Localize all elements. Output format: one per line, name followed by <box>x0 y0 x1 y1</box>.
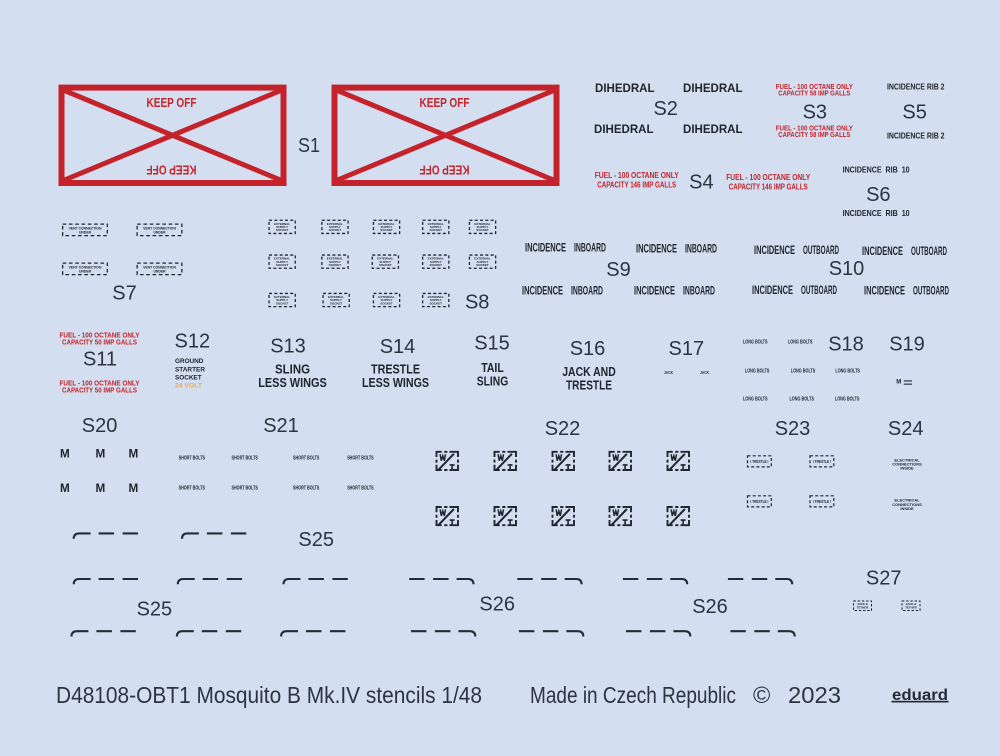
svg-text:INCIDENCE: INCIDENCE <box>636 241 677 255</box>
svg-text:S10: S10 <box>829 258 865 280</box>
svg-text:INBOARD: INBOARD <box>685 241 717 255</box>
svg-text:24 VOLT: 24 VOLT <box>175 382 202 389</box>
svg-text:S11: S11 <box>83 349 117 371</box>
svg-text:JACK: JACK <box>700 370 709 375</box>
svg-text:2023: 2023 <box>788 682 841 708</box>
svg-text:S9: S9 <box>606 259 630 281</box>
svg-text:M: M <box>129 482 139 495</box>
svg-text:SLING: SLING <box>477 373 509 388</box>
svg-text:OUTBOARD: OUTBOARD <box>913 284 949 298</box>
svg-text:CAPACITY 58 IMP GALLS: CAPACITY 58 IMP GALLS <box>778 130 850 139</box>
svg-text:INCIDENCE RIB 10: INCIDENCE RIB 10 <box>843 208 910 218</box>
svg-text:INCIDENCE: INCIDENCE <box>525 240 566 254</box>
svg-text:S3: S3 <box>803 101 827 123</box>
svg-text:JACK: JACK <box>664 370 673 375</box>
svg-text:FUEL - 100 OCTANE ONLY: FUEL - 100 OCTANE ONLY <box>726 173 811 182</box>
svg-text:CAPACITY 50 IMP GALLS: CAPACITY 50 IMP GALLS <box>62 385 137 394</box>
svg-text:S22: S22 <box>545 418 581 440</box>
svg-text:INBOARD: INBOARD <box>574 240 606 254</box>
svg-text:S12: S12 <box>175 331 211 353</box>
svg-text:S25: S25 <box>137 599 173 621</box>
svg-text:S19: S19 <box>889 334 925 356</box>
svg-text:S21: S21 <box>263 415 299 437</box>
svg-text:S13: S13 <box>270 336 306 358</box>
svg-text:INCIDENCE: INCIDENCE <box>634 284 675 298</box>
svg-text:D48108-OBT1 Mosquito B Mk.IV s: D48108-OBT1 Mosquito B Mk.IV stencils 1/… <box>56 682 482 708</box>
svg-text:S8: S8 <box>465 291 489 313</box>
svg-text:DIHEDRAL: DIHEDRAL <box>595 81 655 95</box>
svg-text:INBOARD: INBOARD <box>571 284 603 298</box>
svg-text:M: M <box>96 482 106 495</box>
svg-text:LESS WINGS: LESS WINGS <box>362 375 429 390</box>
svg-text:S23: S23 <box>775 418 811 440</box>
svg-text:M: M <box>60 448 70 461</box>
svg-text:S27: S27 <box>866 568 902 590</box>
svg-text:CAPACITY 146 IMP GALLS: CAPACITY 146 IMP GALLS <box>597 180 677 189</box>
svg-text:TRESTLE: TRESTLE <box>566 378 612 393</box>
svg-text:S24: S24 <box>888 418 924 440</box>
svg-text:S18: S18 <box>828 334 864 356</box>
svg-text:FUEL - 100 OCTANE ONLY: FUEL - 100 OCTANE ONLY <box>595 171 680 180</box>
svg-text:S26: S26 <box>479 594 515 616</box>
svg-text:S17: S17 <box>669 338 705 360</box>
svg-text:M: M <box>60 482 70 495</box>
svg-text:S26: S26 <box>692 596 728 618</box>
svg-text:CAPACITY 146 IMP GALLS: CAPACITY 146 IMP GALLS <box>729 182 809 191</box>
svg-text:DIHEDRAL: DIHEDRAL <box>683 81 743 95</box>
svg-text:S7: S7 <box>112 283 136 305</box>
svg-text:S16: S16 <box>570 338 606 360</box>
svg-text:INCIDENCE: INCIDENCE <box>522 284 563 298</box>
svg-text:INCIDENCE: INCIDENCE <box>864 284 905 298</box>
svg-text:M: M <box>129 448 139 461</box>
svg-text:DIHEDRAL: DIHEDRAL <box>594 122 654 136</box>
svg-text:INCIDENCE: INCIDENCE <box>754 243 795 257</box>
svg-text:OUTBOARD: OUTBOARD <box>911 244 947 258</box>
svg-text:INCIDENCE RIB 2: INCIDENCE RIB 2 <box>887 130 945 140</box>
svg-text:S4: S4 <box>689 172 713 194</box>
svg-text:CAPACITY 50 IMP GALLS: CAPACITY 50 IMP GALLS <box>62 337 137 346</box>
svg-text:S5: S5 <box>902 101 926 123</box>
svg-text:SOCKET: SOCKET <box>175 374 202 381</box>
svg-text:INCIDENCE RIB 10: INCIDENCE RIB 10 <box>843 165 910 175</box>
svg-text:S6: S6 <box>866 184 890 206</box>
svg-text:STARTER: STARTER <box>175 366 205 373</box>
svg-text:INCIDENCE: INCIDENCE <box>862 244 903 258</box>
svg-text:LESS WINGS: LESS WINGS <box>258 375 327 390</box>
svg-text:INCIDENCE: INCIDENCE <box>752 283 793 297</box>
svg-text:OUTBOARD: OUTBOARD <box>801 283 837 297</box>
svg-text:S2: S2 <box>653 98 677 120</box>
svg-text:S1: S1 <box>298 135 320 157</box>
svg-text:INCIDENCE RIB 2: INCIDENCE RIB 2 <box>887 82 945 92</box>
svg-text:INBOARD: INBOARD <box>683 284 715 298</box>
svg-text:DIHEDRAL: DIHEDRAL <box>683 122 743 136</box>
svg-text:OUTBOARD: OUTBOARD <box>803 243 839 257</box>
svg-text:M: M <box>96 448 106 461</box>
svg-text:S20: S20 <box>82 415 118 437</box>
svg-text:S14: S14 <box>380 336 416 358</box>
svg-text:Made in Czech Republic: Made in Czech Republic <box>530 682 736 708</box>
svg-text:S15: S15 <box>474 333 510 355</box>
svg-text:M: M <box>896 378 901 385</box>
svg-text:CAPACITY 58 IMP GALLS: CAPACITY 58 IMP GALLS <box>778 88 850 97</box>
svg-text:S25: S25 <box>298 529 334 551</box>
svg-text:GROUND: GROUND <box>175 358 204 365</box>
svg-text:©: © <box>753 682 770 708</box>
